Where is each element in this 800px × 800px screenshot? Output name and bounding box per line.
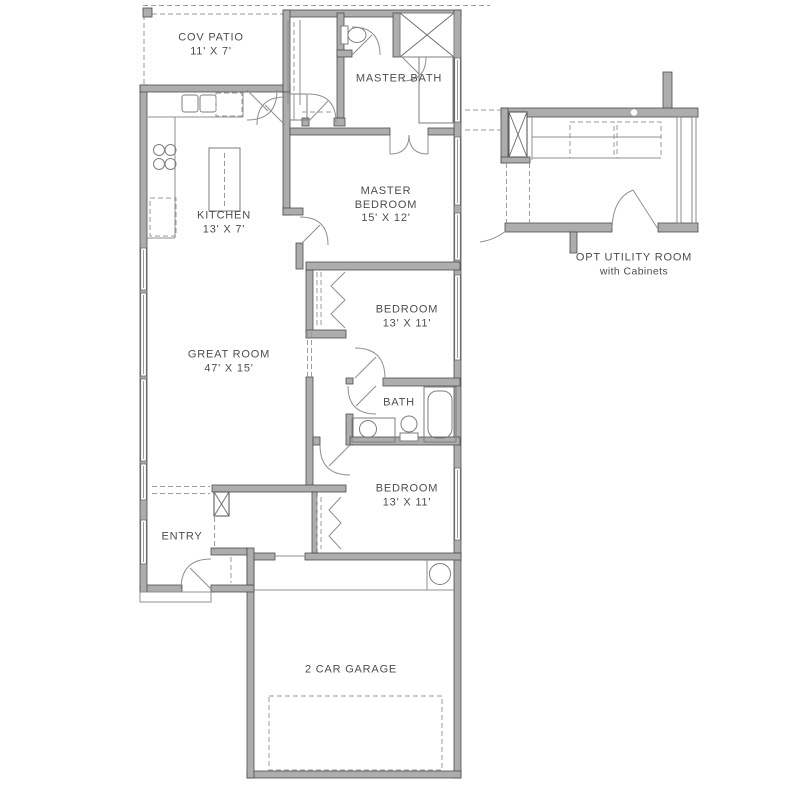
garage-door-dash bbox=[269, 696, 442, 770]
kitchen-sink-icon bbox=[182, 95, 198, 112]
linen-closet bbox=[214, 492, 229, 516]
room-label-opt-utility: OPT UTILITY ROOM with Cabinets bbox=[576, 252, 692, 279]
kitchen-sink-icon bbox=[200, 95, 216, 112]
room-label-kitchen: KITCHEN 13' X 7' bbox=[197, 210, 251, 237]
suite-hall-door bbox=[257, 97, 285, 125]
entry-cased-opening bbox=[152, 487, 210, 494]
patio-door bbox=[247, 90, 277, 120]
room-label-master-bath: MASTER BATH bbox=[356, 72, 442, 86]
bifold-door bbox=[329, 497, 341, 549]
walls bbox=[140, 10, 461, 778]
room-label-bedroom-mid: BEDROOM 13' X 11' bbox=[376, 304, 438, 331]
room-label-master-bedroom: MASTER BEDROOM 15' X 12' bbox=[343, 185, 429, 226]
bifold-door bbox=[331, 272, 345, 328]
utility-cabinets bbox=[532, 117, 661, 160]
optional-wall-dashes bbox=[507, 163, 530, 223]
inset-wall-curve bbox=[480, 231, 506, 242]
utility-mech-chase bbox=[509, 112, 527, 157]
master-closet-door bbox=[308, 94, 336, 122]
room-label-entry: ENTRY bbox=[161, 530, 202, 544]
bedroom-lower-door bbox=[320, 445, 350, 475]
front-door bbox=[181, 559, 211, 589]
pantry-cabinet bbox=[290, 94, 307, 120]
patio-post bbox=[143, 8, 152, 17]
closet-shelf-dashes bbox=[317, 272, 321, 549]
room-label-garage: 2 CAR GARAGE bbox=[305, 663, 397, 677]
master-bedroom-door bbox=[300, 217, 328, 245]
master-bath-fixtures bbox=[288, 13, 454, 123]
dishwasher-icon bbox=[216, 93, 242, 116]
wall-dot bbox=[631, 109, 637, 115]
room-label-bedroom-lower: BEDROOM 13' X 11' bbox=[376, 483, 438, 510]
kitchen-counter-left bbox=[147, 117, 175, 238]
bedroom-mid-door bbox=[355, 348, 385, 378]
master-vanity bbox=[419, 57, 453, 123]
hall-cased-opening bbox=[308, 332, 312, 377]
toilet-icon bbox=[341, 26, 366, 44]
room-label-great-room: GREAT ROOM 47' X 15' bbox=[188, 349, 270, 376]
master-closet-shelves bbox=[288, 20, 334, 112]
garage-storage-strip bbox=[254, 560, 454, 590]
room-label-bath: BATH bbox=[383, 396, 415, 410]
range-icon bbox=[154, 145, 177, 170]
hall-bath-fixtures bbox=[352, 387, 456, 442]
refrigerator-icon bbox=[150, 198, 176, 236]
water-heater-icon bbox=[430, 564, 451, 585]
inset-connector-dashes bbox=[465, 110, 501, 130]
toilet-icon bbox=[400, 416, 418, 441]
tub-icon bbox=[424, 387, 456, 442]
utility-door bbox=[612, 190, 658, 229]
utility-inset bbox=[465, 72, 698, 253]
porch-step bbox=[140, 592, 211, 602]
hall-bath-door bbox=[348, 386, 376, 414]
floor-plan: COV PATIO 11' X 7' MASTER BATH KITCHEN 1… bbox=[0, 0, 800, 800]
master-bath-double-doors bbox=[390, 135, 428, 154]
shower-icon bbox=[400, 13, 454, 57]
room-label-cov-patio: COV PATIO 11' X 7' bbox=[178, 32, 243, 59]
